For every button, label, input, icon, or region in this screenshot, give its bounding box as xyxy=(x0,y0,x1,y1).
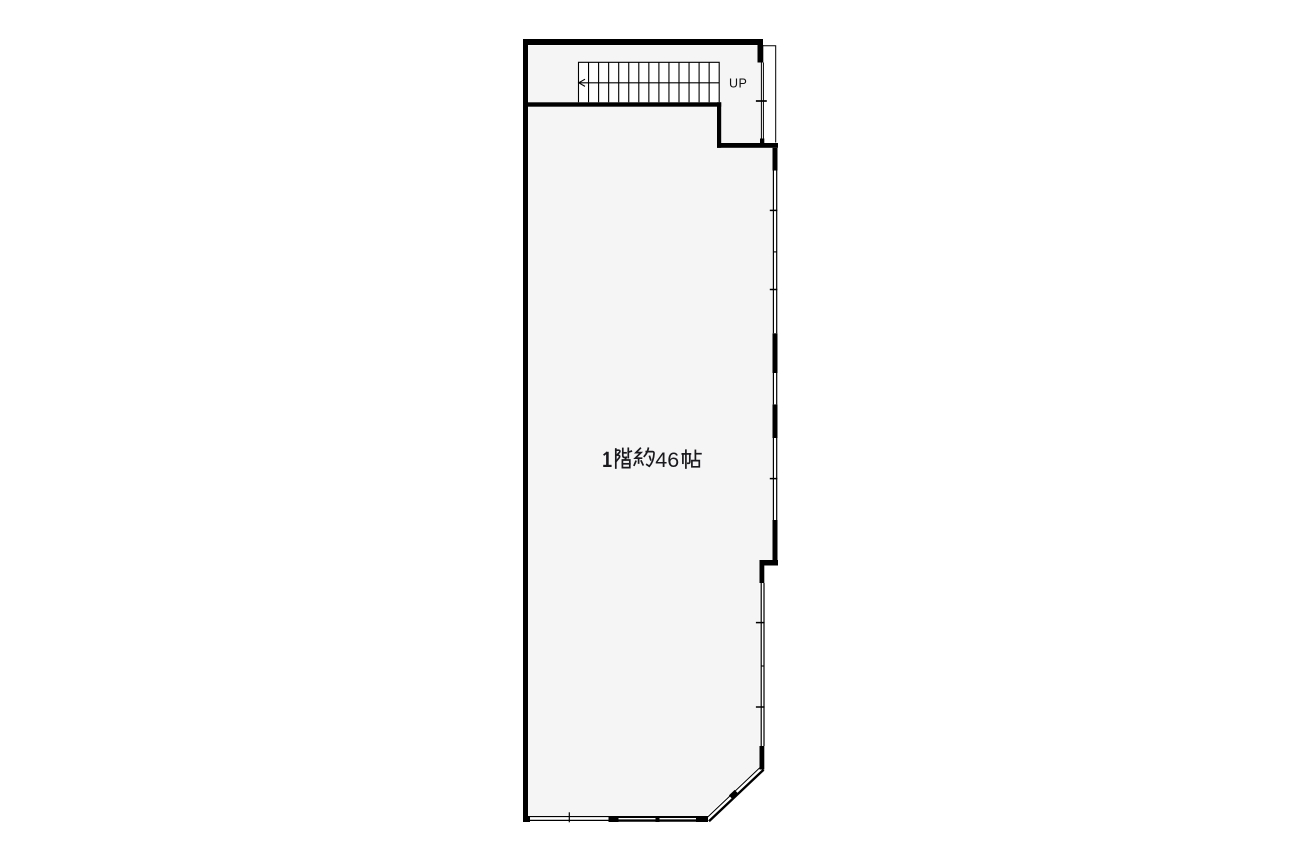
svg-text:46: 46 xyxy=(655,448,679,472)
svg-text:UP: UP xyxy=(729,77,747,91)
